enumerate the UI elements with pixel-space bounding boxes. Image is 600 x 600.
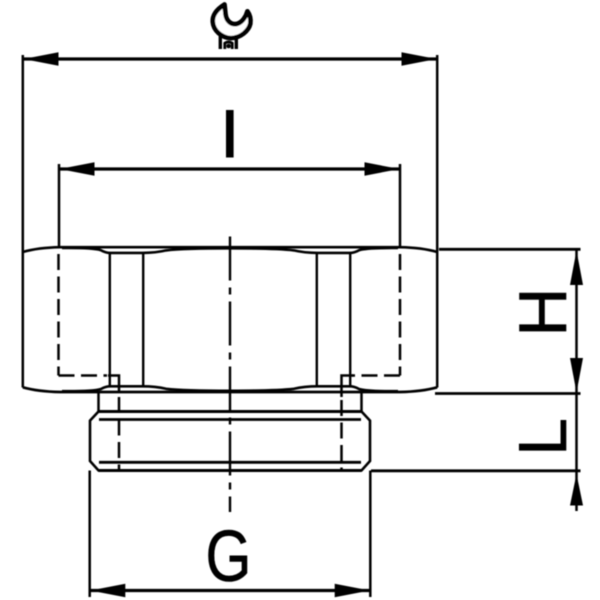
svg-text:H: H	[505, 288, 581, 337]
svg-text:L: L	[505, 418, 581, 456]
svg-text:G: G	[206, 515, 252, 596]
